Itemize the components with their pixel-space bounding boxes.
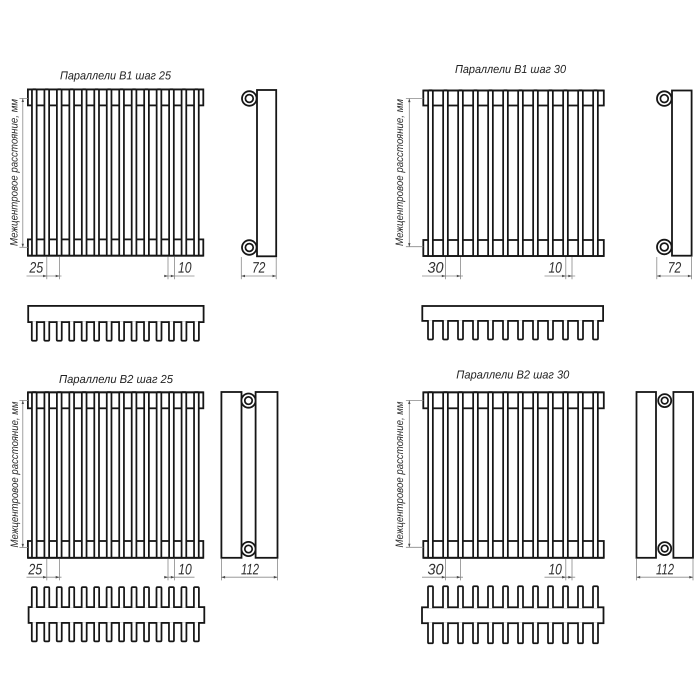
svg-text:112: 112 bbox=[656, 561, 674, 578]
svg-text:Межцентровое расстояние, мм: Межцентровое расстояние, мм bbox=[394, 98, 406, 246]
svg-text:10: 10 bbox=[178, 260, 192, 277]
svg-text:Параллели В2 шаг 25: Параллели В2 шаг 25 bbox=[59, 373, 174, 386]
svg-text:Межцентровое расстояние, мм: Межцентровое расстояние, мм bbox=[9, 401, 21, 548]
svg-text:72: 72 bbox=[668, 260, 682, 277]
svg-text:30: 30 bbox=[427, 260, 444, 277]
svg-text:25: 25 bbox=[29, 260, 44, 277]
svg-text:Параллели В1 шаг 25: Параллели В1 шаг 25 bbox=[60, 69, 172, 82]
svg-text:10: 10 bbox=[178, 561, 192, 578]
svg-text:10: 10 bbox=[548, 561, 562, 578]
svg-text:Межцентровое расстояние, мм: Межцентровое расстояние, мм bbox=[9, 98, 21, 246]
svg-text:30: 30 bbox=[427, 561, 444, 578]
svg-text:10: 10 bbox=[548, 260, 562, 277]
svg-text:25: 25 bbox=[28, 561, 43, 578]
svg-text:Межцентровое расстояние, мм: Межцентровое расстояние, мм bbox=[394, 401, 406, 548]
svg-text:72: 72 bbox=[252, 260, 266, 277]
svg-text:Параллели В1 шаг 30: Параллели В1 шаг 30 bbox=[455, 63, 567, 76]
svg-text:Параллели В2 шаг 30: Параллели В2 шаг 30 bbox=[456, 368, 570, 381]
svg-text:112: 112 bbox=[241, 561, 259, 578]
